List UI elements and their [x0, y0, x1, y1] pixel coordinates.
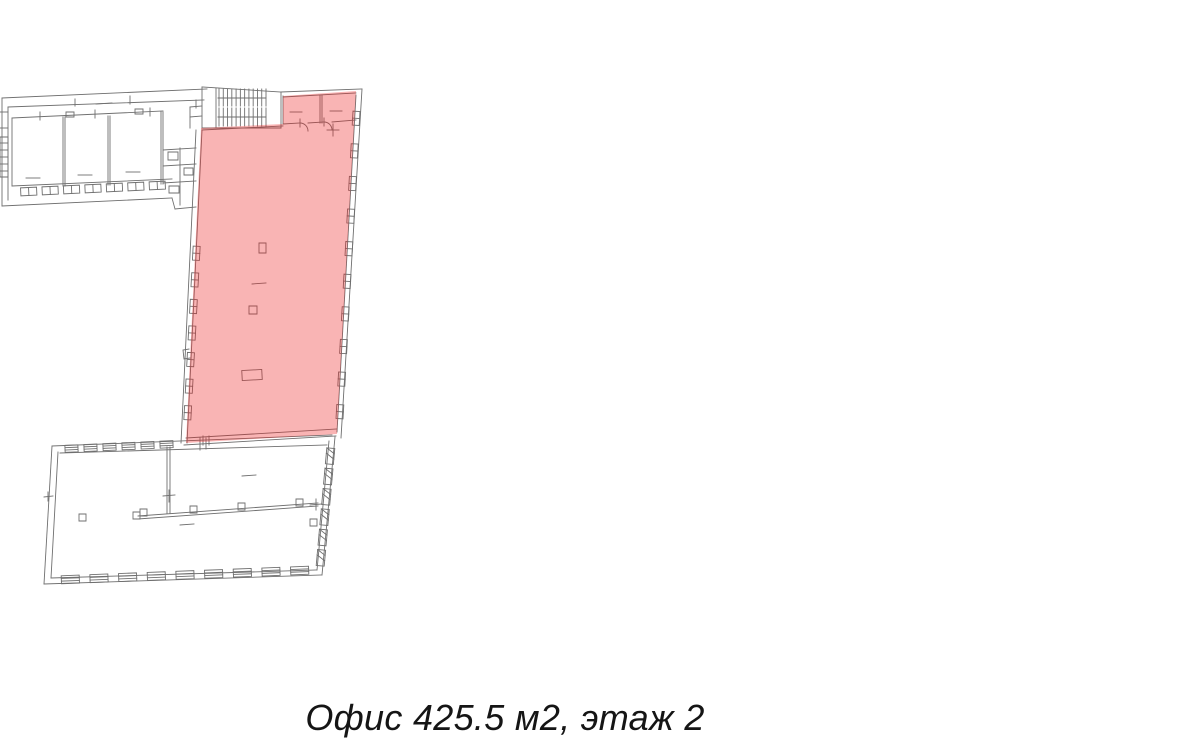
window-icon: [65, 445, 78, 453]
utility-rooms-cluster: [163, 100, 202, 209]
window-icon: [63, 185, 79, 194]
wing-bottom-windows: [21, 181, 166, 196]
caption-text: Офис 425.5 м2, этаж 2: [305, 697, 704, 738]
window-icon: [61, 575, 79, 584]
window-icon: [90, 574, 108, 583]
floor-plan: [0, 0, 1200, 745]
window-icon: [119, 573, 137, 582]
window-icon: [42, 186, 58, 195]
staircase: [202, 87, 281, 128]
window-icon: [147, 572, 165, 581]
lower-top-windows: [65, 441, 173, 453]
page: Офис 425.5 м2, этаж 2: [0, 0, 1200, 745]
lower-building: [44, 435, 335, 584]
stair-treads-upper: [219, 89, 266, 106]
lower-bottom-windows: [61, 566, 309, 584]
window-icon: [106, 183, 122, 192]
window-icon: [85, 184, 101, 193]
window-icon: [128, 182, 144, 191]
wall-notch: [183, 349, 190, 359]
highlight-office-area: [186, 91, 356, 443]
window-icon: [21, 187, 37, 196]
window-icon: [205, 570, 223, 579]
window-icon: [176, 571, 194, 580]
left-wing-walls: [0, 89, 207, 206]
caption: Офис 425.5 м2, этаж 2: [0, 697, 1010, 739]
